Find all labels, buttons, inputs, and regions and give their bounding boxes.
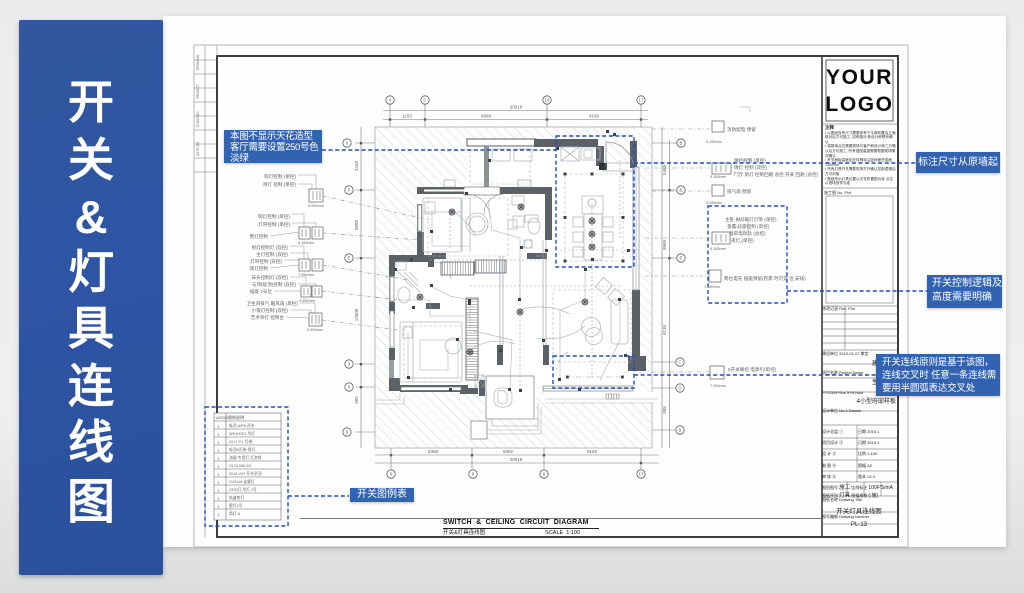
svg-text:排气扇 预留: 排气扇 预留 <box>727 188 752 195</box>
svg-text:♪: ♪ <box>217 448 220 454</box>
svg-text:D: D <box>678 386 681 391</box>
svg-text:DATE 201: DATE 201 <box>196 141 200 156</box>
svg-text:窗帘电动轨 (总控): 窗帘电动轨 (总控) <box>729 230 766 237</box>
svg-text:9868: 9868 <box>662 239 667 250</box>
svg-text:E: E <box>348 256 351 261</box>
svg-text:油烟 专用灯 灯泡排: 油烟 专用灯 灯泡排 <box>229 455 262 460</box>
svg-text:插座 1号位: 插座 1号位 <box>250 288 273 295</box>
svg-text:7.150mm: 7.150mm <box>704 285 720 289</box>
svg-text:5.000mm: 5.000mm <box>308 204 324 208</box>
svg-text:轨道射灯: 轨道射灯 <box>229 495 244 500</box>
svg-text:985: 985 <box>354 396 359 404</box>
svg-text:DRAW NO: DRAW NO <box>196 54 200 70</box>
svg-text:壁灯控制: 壁灯控制 <box>250 233 269 240</box>
svg-text:筒灯 控制 (双控): 筒灯 控制 (双控) <box>734 164 768 171</box>
svg-text:筒灯控制 (单控): 筒灯控制 (单控) <box>258 213 290 220</box>
svg-text:吸顶&灯带 筒灯: 吸顶&灯带 筒灯 <box>229 447 256 452</box>
svg-text:7.200mm: 7.200mm <box>710 384 726 388</box>
svg-text:主卧 射灯筒灯灯带 (单控): 主卧 射灯筒灯灯带 (单控) <box>725 216 777 223</box>
svg-text:5.200mm: 5.200mm <box>307 328 323 332</box>
svg-text:13: 13 <box>545 98 550 103</box>
svg-text:夜灯 (单控): 夜灯 (单控) <box>731 237 754 244</box>
svg-text:20019: 20019 <box>510 105 523 110</box>
svg-text:灯带控制 (单控): 灯带控制 (单控) <box>258 221 290 228</box>
svg-text:小夜灯控制 (双控): 小夜灯控制 (双控) <box>252 307 289 314</box>
svg-text:U201B: U201B <box>216 415 229 420</box>
svg-text:消防配电 预留: 消防配电 预留 <box>727 126 756 133</box>
svg-text:G20118 走廊灯: G20118 走廊灯 <box>229 479 255 484</box>
svg-text:8868: 8868 <box>481 114 492 119</box>
svg-text:CHECKED: CHECKED <box>196 111 200 127</box>
svg-text:D: D <box>423 98 426 103</box>
svg-text:WH100E1 吊灯: WH100E1 吊灯 <box>229 431 255 436</box>
svg-text:♪: ♪ <box>217 464 220 470</box>
svg-text:B: B <box>679 428 682 433</box>
svg-text:♪: ♪ <box>217 432 220 438</box>
svg-text:E: E <box>680 256 683 261</box>
svg-text:F: F <box>348 188 351 193</box>
svg-text:吸顶 A/PA 开关: 吸顶 A/PA 开关 <box>229 423 255 428</box>
svg-text:PROJECT: PROJECT <box>196 84 200 99</box>
svg-text:床头控制灯 (双控): 床头控制灯 (双控) <box>252 274 289 281</box>
svg-text:♪: ♪ <box>217 440 220 446</box>
svg-text:卫生间排气 暖风扇 (单控): 卫生间排气 暖风扇 (单控) <box>246 300 298 307</box>
svg-text:灯带控制 (双控): 灯带控制 (双控) <box>250 258 282 265</box>
svg-text:♪: ♪ <box>217 504 220 510</box>
svg-text:17: 17 <box>639 98 644 103</box>
svg-text:夜灯控制: 夜灯控制 <box>250 265 269 272</box>
svg-text:香薰 灯带控制 (单控): 香薰 灯带控制 (单控) <box>727 223 770 230</box>
svg-text:3448: 3448 <box>354 160 359 171</box>
svg-text:筒灯控制 (单控): 筒灯控制 (单控) <box>264 173 296 180</box>
svg-text:13500: 13500 <box>354 308 359 321</box>
svg-text:17: 17 <box>639 472 644 477</box>
svg-text:1150: 1150 <box>402 114 412 119</box>
svg-text:0.550mm: 0.550mm <box>299 299 315 303</box>
svg-text:GLS10/6CH1: GLS10/6CH1 <box>229 464 252 468</box>
svg-text:♪: ♪ <box>217 488 220 494</box>
svg-text:6082: 6082 <box>503 449 514 454</box>
svg-text:2017 P.1 灯带: 2017 P.1 灯带 <box>229 439 253 444</box>
svg-text:5.150mm: 5.150mm <box>710 247 726 251</box>
svg-text:门厅 筒灯 控制回路 总控 开关 回路 (总控): 门厅 筒灯 控制回路 总控 开关 回路 (总控) <box>734 171 819 178</box>
svg-text:5.150mm: 5.150mm <box>710 175 726 179</box>
svg-text:射灯控制灯 (双控): 射灯控制灯 (双控) <box>252 244 289 251</box>
svg-text:5.450mm: 5.450mm <box>706 201 722 205</box>
svg-text:主灯控制 (双控): 主灯控制 (双控) <box>256 251 288 258</box>
svg-text:5.150mm: 5.150mm <box>298 241 314 245</box>
svg-text:艺术吊灯 控制台: 艺术吊灯 控制台 <box>251 314 285 321</box>
svg-text:2015 V47 开关吊顶: 2015 V47 开关吊顶 <box>229 471 262 476</box>
svg-text:6开关联控 电源引(单控): 6开关联控 电源引(单控) <box>728 366 777 373</box>
svg-text:♪: ♪ <box>217 496 220 502</box>
svg-text:5468: 5468 <box>662 164 667 175</box>
svg-text:♪: ♪ <box>217 512 220 518</box>
svg-text:♪: ♪ <box>217 456 220 462</box>
svg-text:8868: 8868 <box>354 219 359 230</box>
svg-text:9168: 9168 <box>589 114 600 119</box>
svg-text:985: 985 <box>662 406 667 414</box>
svg-text:筒灯 A: 筒灯 A <box>229 511 241 516</box>
svg-text:20019: 20019 <box>510 457 523 462</box>
svg-text:7.450mm: 7.450mm <box>298 273 314 277</box>
svg-text:吊灯 控制 (单控): 吊灯 控制 (单控) <box>263 181 297 188</box>
svg-text:与顶(吸顶)控制 (双控): 与顶(吸顶)控制 (双控) <box>252 281 297 288</box>
svg-text:图例说明: 图例说明 <box>228 414 244 420</box>
svg-text:5468: 5468 <box>428 449 439 454</box>
svg-text:5.150mm: 5.150mm <box>706 140 722 144</box>
svg-text:6118: 6118 <box>662 325 667 335</box>
svg-text:两位电先 插座预留(有需 时可定 位 安排): 两位电先 插座预留(有需 时可定 位 安排) <box>724 275 806 282</box>
svg-text:♪: ♪ <box>217 424 220 430</box>
svg-text:壁灯1号: 壁灯1号 <box>229 503 243 508</box>
svg-text:C: C <box>678 360 681 365</box>
svg-text:B: B <box>680 141 683 146</box>
svg-text:9168: 9168 <box>587 449 598 454</box>
svg-text:♪: ♪ <box>217 472 220 478</box>
svg-text:E: E <box>680 188 683 193</box>
svg-text:♪: ♪ <box>217 480 220 486</box>
svg-text:GRD灯 吊灯 2号: GRD灯 吊灯 2号 <box>229 487 257 492</box>
